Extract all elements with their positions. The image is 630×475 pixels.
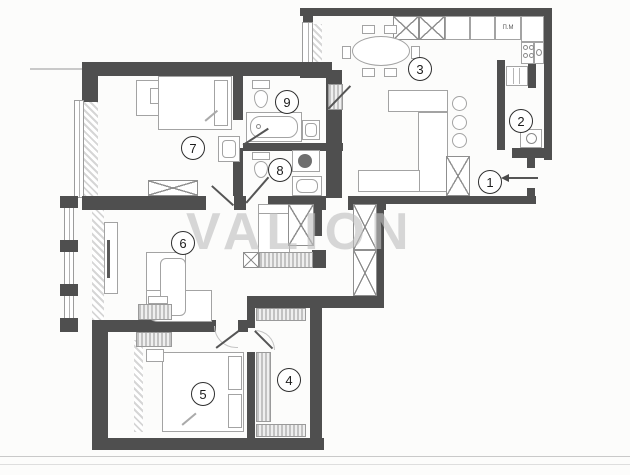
sofa bbox=[358, 170, 420, 192]
round-basin bbox=[298, 154, 312, 168]
tv bbox=[107, 240, 110, 278]
site-boundary-line bbox=[0, 464, 630, 465]
room-number-7: 7 bbox=[181, 136, 205, 160]
toilet-tank bbox=[252, 80, 270, 89]
wall bbox=[233, 76, 243, 120]
room-number-6: 6 bbox=[171, 231, 195, 255]
room-number-4: 4 bbox=[277, 368, 301, 392]
shelving-unit bbox=[256, 424, 306, 437]
bed-pillows bbox=[214, 80, 228, 126]
fridge-line bbox=[519, 68, 520, 84]
chest-top bbox=[148, 296, 168, 304]
cabinet bbox=[243, 252, 259, 268]
facade-pillar bbox=[60, 240, 78, 252]
wall bbox=[82, 76, 98, 102]
wall bbox=[96, 196, 206, 210]
toilet-bowl bbox=[254, 161, 268, 178]
fridge-line bbox=[513, 68, 514, 84]
toilet-bowl bbox=[254, 90, 268, 108]
wall bbox=[82, 62, 332, 76]
shower-tray-inner bbox=[296, 179, 318, 193]
wall bbox=[497, 60, 505, 150]
window bbox=[74, 100, 84, 198]
shelving-unit bbox=[256, 308, 306, 321]
wall bbox=[92, 332, 108, 450]
wall bbox=[108, 438, 324, 450]
burner bbox=[523, 53, 528, 58]
dresser bbox=[136, 332, 172, 347]
wall bbox=[300, 8, 552, 16]
wall-insulation bbox=[92, 210, 104, 320]
wall bbox=[247, 308, 255, 328]
armchair-seat bbox=[222, 140, 236, 158]
floor-plan: П.М bbox=[0, 0, 630, 475]
wall bbox=[544, 8, 552, 160]
chest bbox=[138, 304, 172, 320]
room-number-8: 8 bbox=[268, 158, 292, 182]
sofa bbox=[388, 90, 448, 112]
facade-pillar bbox=[60, 196, 78, 208]
chair bbox=[362, 68, 375, 77]
chair bbox=[342, 46, 351, 59]
room-number-2: 2 bbox=[509, 109, 533, 133]
wall bbox=[247, 352, 255, 450]
wall-insulation bbox=[313, 24, 322, 66]
kitchen-cabinet bbox=[470, 16, 495, 40]
hall-wardrobe bbox=[353, 204, 377, 250]
door-leaf-room7 bbox=[211, 185, 234, 206]
wall bbox=[528, 64, 536, 88]
bench-back bbox=[258, 204, 290, 214]
room-number-9: 9 bbox=[275, 90, 299, 114]
bed-pillow bbox=[228, 356, 242, 390]
room-number-3: 3 bbox=[408, 57, 432, 81]
entrance-arrow-line bbox=[508, 177, 538, 179]
entrance-arrow-head bbox=[501, 174, 509, 182]
room-number-5: 5 bbox=[191, 382, 215, 406]
dining-table bbox=[352, 36, 410, 66]
bar-stool bbox=[452, 115, 467, 130]
chair bbox=[362, 25, 375, 34]
wall-insulation bbox=[134, 340, 143, 432]
toilet-tank bbox=[252, 152, 270, 160]
hall-wardrobe bbox=[353, 250, 377, 296]
burner bbox=[523, 45, 528, 50]
wall bbox=[234, 196, 246, 210]
bed-pillow bbox=[228, 394, 242, 428]
wall bbox=[312, 250, 326, 268]
washer-drum bbox=[526, 133, 537, 144]
sofa bbox=[418, 112, 448, 192]
bar-stool bbox=[452, 133, 467, 148]
sideboard bbox=[259, 252, 313, 268]
bathtub-drain bbox=[256, 124, 261, 129]
wall bbox=[336, 296, 384, 308]
chair bbox=[384, 68, 397, 77]
room-number-1: 1 bbox=[478, 170, 502, 194]
site-boundary-line bbox=[0, 456, 630, 457]
dishwasher-label: П.М bbox=[495, 16, 521, 40]
washbasin-bowl bbox=[305, 123, 317, 137]
facade-pillar bbox=[60, 318, 78, 332]
wardrobe bbox=[446, 156, 470, 196]
kitchen-cabinet bbox=[419, 16, 445, 40]
facade-pillar bbox=[60, 284, 78, 296]
chair bbox=[384, 25, 397, 34]
wall bbox=[527, 156, 535, 168]
door-leaf-room8 bbox=[245, 177, 268, 204]
wardrobe bbox=[288, 204, 314, 246]
fridge bbox=[506, 66, 528, 86]
wall bbox=[247, 296, 337, 308]
kitchen-cabinet bbox=[445, 16, 470, 40]
shelving-unit bbox=[256, 352, 271, 422]
wall bbox=[310, 308, 322, 450]
sink-basin bbox=[536, 49, 542, 56]
bar-stool bbox=[452, 96, 467, 111]
wardrobe bbox=[148, 180, 198, 196]
wall-insulation bbox=[84, 102, 98, 196]
window bbox=[64, 200, 74, 326]
exterior-line bbox=[30, 68, 84, 70]
window bbox=[302, 22, 313, 66]
kitchen-corner-cabinet bbox=[521, 16, 544, 42]
stool bbox=[146, 349, 164, 362]
